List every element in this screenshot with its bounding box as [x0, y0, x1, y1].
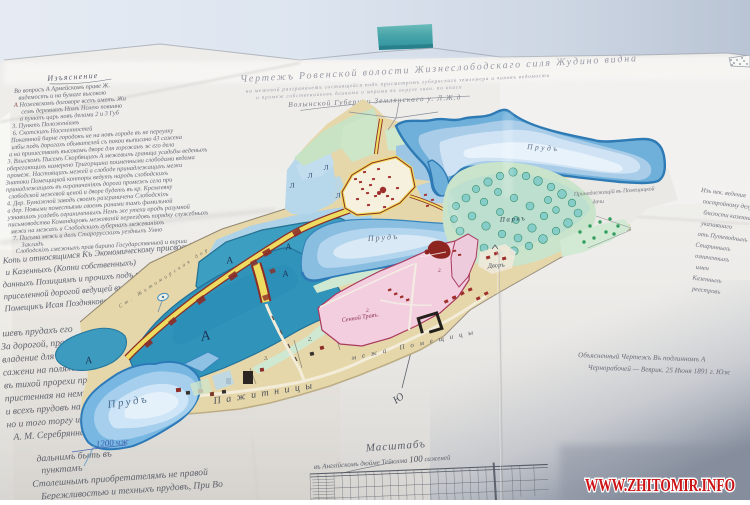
svg-text:2.: 2. — [308, 337, 313, 343]
svg-text:WWW.ZHITOMIR.INFO: WWW.ZHITOMIR.INFO — [585, 475, 735, 495]
svg-text:2.: 2. — [366, 309, 370, 314]
svg-text:2.: 2. — [438, 269, 442, 274]
svg-text:дачи: дачи — [592, 198, 604, 206]
svg-text:3.: 3. — [263, 356, 269, 362]
